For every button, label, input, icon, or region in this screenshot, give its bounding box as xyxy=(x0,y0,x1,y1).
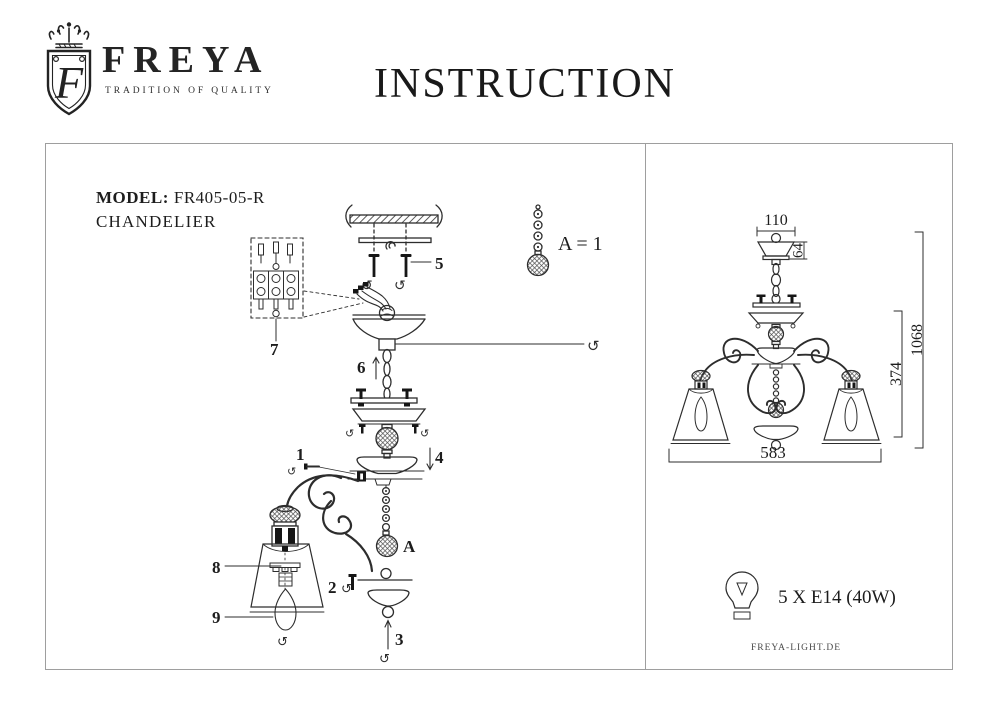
svg-text:374: 374 xyxy=(888,362,905,386)
svg-text:110: 110 xyxy=(764,212,787,229)
part-label-9: 9 xyxy=(212,608,221,627)
part-label-7: 7 xyxy=(270,340,279,359)
part-label-a: A xyxy=(403,537,416,556)
chain xyxy=(383,350,391,401)
logo-monogram: F xyxy=(54,57,84,108)
model-label: MODEL: xyxy=(96,188,169,207)
dim-fixture-width: 583 xyxy=(669,443,881,462)
model-value: FR405-05-R xyxy=(174,188,265,207)
candle-bulb xyxy=(275,573,296,630)
ceiling xyxy=(346,205,442,227)
content-box: MODEL:FR405-05-R CHANDELIER xyxy=(45,143,953,670)
svg-text:1068: 1068 xyxy=(909,324,926,356)
part-label-1: 1 xyxy=(296,445,305,464)
part-label-6: 6 xyxy=(357,358,366,377)
rotate-icon: ↺ xyxy=(420,427,429,440)
scroll-arm xyxy=(287,475,372,571)
dim-body-height: 374 xyxy=(888,311,905,437)
bottom-finial xyxy=(368,590,409,618)
part-label-2: 2 xyxy=(328,578,337,597)
product-type: CHANDELIER xyxy=(96,210,265,234)
rotate-icon: ↺ xyxy=(277,635,288,650)
dim-total-height: 1068 xyxy=(909,232,926,448)
model-block: MODEL:FR405-05-R CHANDELIER xyxy=(96,186,265,234)
rotate-icon: ↺ xyxy=(394,278,406,294)
mounting-screws xyxy=(369,254,412,277)
body-bowl xyxy=(348,457,424,485)
bulb-spec: 5 X E14 (40W) xyxy=(778,587,896,608)
brand-tagline: TRADITION OF QUALITY xyxy=(105,86,274,96)
dim-canopy-height: 64 xyxy=(790,242,807,259)
center-column xyxy=(752,325,800,418)
page-title: INSTRUCTION xyxy=(330,60,720,108)
website: FREYA-LIGHT.DE xyxy=(751,643,841,653)
part-label-4: 4 xyxy=(435,448,444,467)
terminal-box xyxy=(251,238,363,341)
assembly-panel: MODEL:FR405-05-R CHANDELIER xyxy=(46,144,646,669)
right-shade xyxy=(822,371,881,444)
crystal-ornament xyxy=(376,425,398,459)
dimensions-panel: 110 64 xyxy=(646,144,952,669)
svg-text:64: 64 xyxy=(791,243,807,259)
arrow-up-icon xyxy=(385,621,391,650)
lampshade xyxy=(250,544,324,612)
chain xyxy=(772,260,781,304)
rotate-icon: ↺ xyxy=(379,652,390,667)
model-line: MODEL:FR405-05-R xyxy=(96,186,265,210)
legend-crystal xyxy=(528,205,549,276)
bead-chain xyxy=(377,485,398,557)
brand-name: FREYA xyxy=(102,38,269,82)
bulb-icon xyxy=(726,572,758,619)
legend-text: A = 1 xyxy=(558,233,603,255)
dim-canopy-width: 110 xyxy=(757,212,795,236)
rotate-icon: ↺ xyxy=(287,465,296,478)
part-label-3: 3 xyxy=(395,630,404,649)
arm-end: ↺ xyxy=(341,569,412,598)
rotate-icon: ↺ xyxy=(587,337,600,355)
dimension-drawing: 110 64 xyxy=(646,144,952,669)
rotate-icon: ↺ xyxy=(345,427,354,440)
ceiling-canopy xyxy=(758,234,794,260)
arrow-up-icon xyxy=(373,358,379,380)
left-shade xyxy=(671,371,730,444)
arrow-down-icon xyxy=(427,448,433,470)
part-label-8: 8 xyxy=(212,558,221,577)
part-label-5: 5 xyxy=(435,254,444,273)
canopy: ↺ xyxy=(353,306,600,356)
rotate-icon: ↺ xyxy=(341,582,352,597)
crown-icon xyxy=(49,22,88,47)
svg-text:583: 583 xyxy=(760,443,786,462)
mounting-bracket xyxy=(359,238,431,249)
instruction-sheet: F FREYA TRADITION OF QUALITY INSTRUCTION… xyxy=(0,0,1000,706)
